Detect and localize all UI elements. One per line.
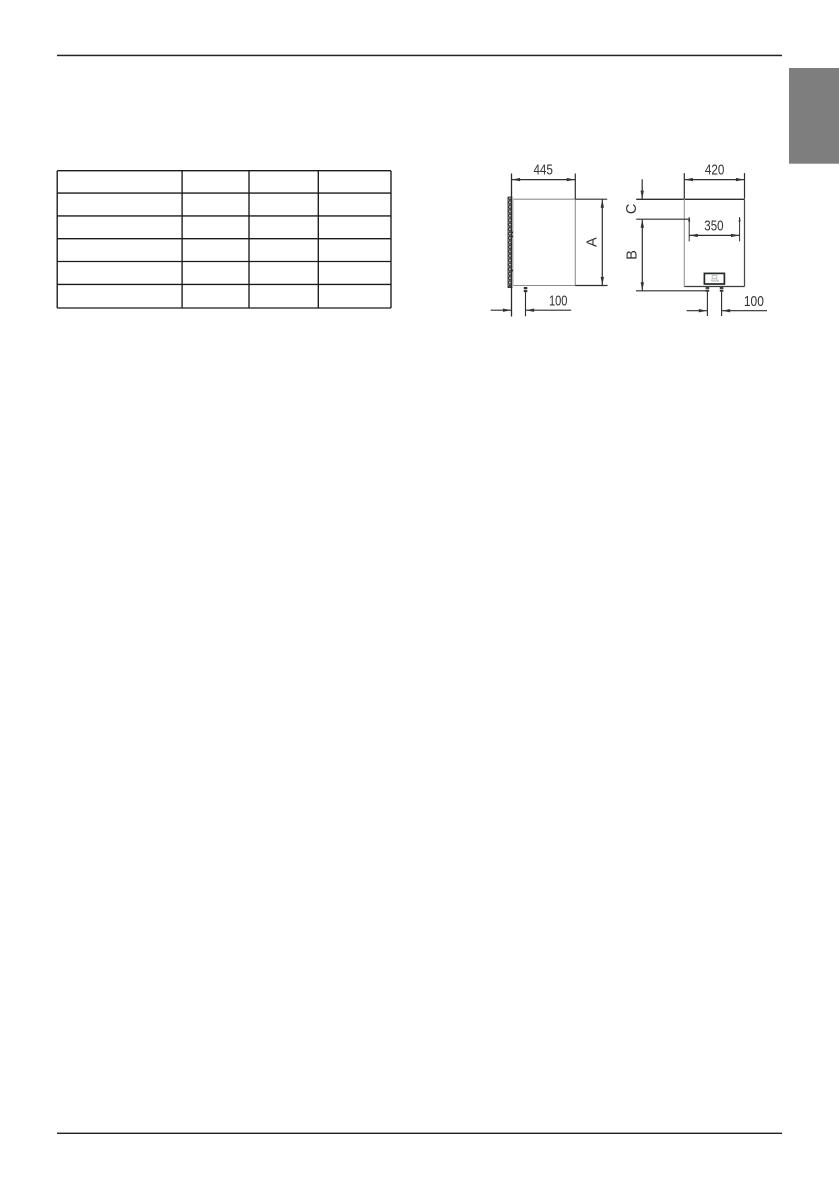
svg-text:A: A — [584, 237, 600, 247]
svg-text:C: C — [624, 204, 640, 214]
svg-text:445: 445 — [533, 163, 553, 179]
svg-text:420: 420 — [705, 163, 725, 179]
svg-text:100: 100 — [549, 293, 568, 309]
svg-text:B: B — [624, 250, 640, 260]
svg-text:350: 350 — [704, 219, 723, 235]
svg-text:100: 100 — [744, 294, 764, 310]
